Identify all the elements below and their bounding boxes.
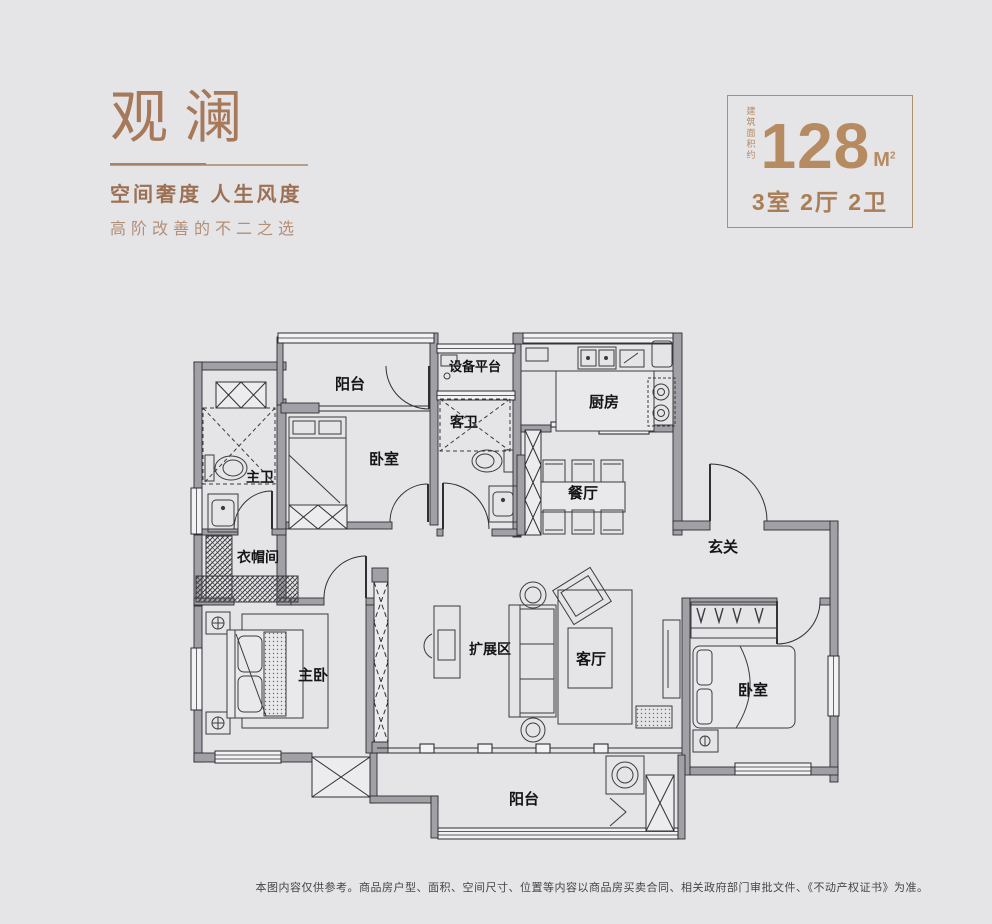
armchair-icon [553,567,612,624]
heater-icon [610,798,626,826]
kitchen-counter-icon [521,341,673,371]
sink-master-icon [208,494,238,532]
room-label-balcony-top: 阳台 [335,375,365,393]
wardrobe-bedroom-top-icon [289,505,347,529]
room-label-bedroom-top: 卧室 [369,450,399,468]
window-right-wall-icon [828,656,839,716]
bed-top-icon [289,417,346,505]
door-guest-bath-icon [443,483,489,529]
poster-page: 观澜 空间奢度 人生风度 高阶改善的不二之选 建筑面积约 128 M2 3室 2… [0,0,992,924]
bed-master-icon [227,630,303,718]
plant-decor-icon [636,706,672,728]
room-label-kitchen: 厨房 [589,393,619,411]
shaft-top-left-icon [216,382,266,408]
toilet-master-icon [205,455,247,481]
window-kitchen-top-icon [523,333,673,343]
door-bedroom-right-icon [777,601,820,644]
shaft-dining-strip-icon [525,430,541,535]
room-label-bedroom-right: 卧室 [738,681,768,699]
room-label-master-bath: 主卫 [246,469,274,485]
door-bedroom-top-icon [390,484,428,522]
door-master-bedroom-icon [324,556,366,598]
door-entry-icon [710,464,767,521]
side-table-icon [520,582,546,742]
window-equip-top-icon [437,344,515,353]
wardrobe-horizontal-icon [196,576,298,602]
room-label-dining: 餐厅 [568,484,598,502]
sofa-icon [509,605,556,717]
partition-living-icon [374,582,388,742]
room-label-foyer: 玄关 [708,538,738,556]
shaft-balcony-right-icon [646,775,674,831]
toilet-guest-icon [472,450,513,472]
room-label-cloakroom: 衣帽间 [237,549,279,565]
room-label-guest-bath: 客卫 [449,414,478,430]
nightstand-icon [206,612,230,734]
floorplan-svg: 阳台 设备平台 厨房 卧室 客卫 主卫 餐厅 玄关 衣帽间 主卧 扩展区 客厅 … [0,0,992,924]
room-label-expansion-area: 扩展区 [469,641,511,657]
disclaimer-text: 本图内容仅供参考。商品房户型、面积、空间尺寸、位置等内容以商品房买卖合同、相关政… [200,879,984,895]
room-label-living-room: 客厅 [575,650,606,668]
tv-cabinet-icon [663,620,680,698]
door-balcony-top-icon [386,366,429,409]
nightstand-right-icon [693,730,718,752]
window-masterbed-bottom-icon [215,751,281,763]
window-balcony-top-icon [278,333,434,343]
room-label-balcony-bottom: 阳台 [509,790,539,808]
window-bedroom-right-bottom-icon [735,763,811,775]
window-left-lower-icon [191,648,202,710]
shaft-balcony-left-icon [312,757,370,797]
window-balcony-bottom-icon [438,828,678,839]
room-label-equipment-platform: 设备平台 [449,359,501,374]
room-label-master-bedroom: 主卧 [298,666,328,684]
desk-icon [424,606,460,678]
door-master-bath-icon [234,491,272,529]
wardrobe-bedroom-right-icon [691,602,777,638]
washer-icon [606,756,644,794]
window-left-upper-icon [191,488,202,534]
